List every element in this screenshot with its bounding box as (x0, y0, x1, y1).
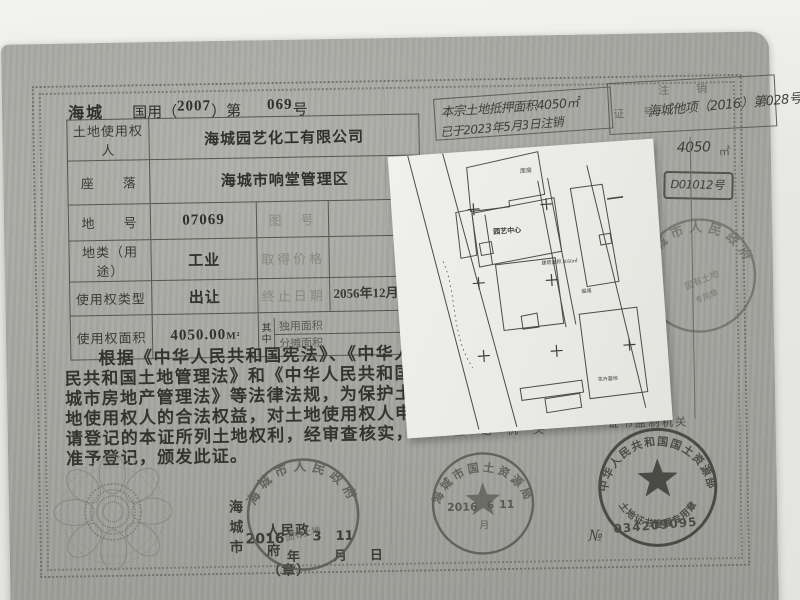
seal-center-line2: 专用章 (693, 287, 719, 306)
mortgage-area-unit: ㎡ (719, 143, 730, 159)
right-type-label: 使用权类型 (70, 281, 153, 316)
area-number: 4050.00 (170, 327, 226, 344)
serial-no-symbol: № (588, 526, 603, 544)
day-char: 日 (370, 544, 383, 563)
serial-number: 069 (267, 97, 293, 114)
seal-arc-text: 海城市人民政府 (243, 458, 362, 508)
parcel-value: 07069 (150, 202, 257, 240)
table-row: 土地使用权人 海城园艺化工有限公司 (67, 114, 420, 161)
owner-value: 海城园艺化工有限公司 (149, 114, 420, 160)
guilloche-rosette (47, 449, 179, 581)
cancellation-box: 注 销 证 号 海城他项（2016）第028号 (607, 74, 777, 135)
seal-center-text: 国有土地 (284, 524, 322, 543)
location-label: 座 落 (67, 160, 150, 205)
bureau-date-month: 6 (487, 500, 494, 511)
road-line (443, 149, 517, 430)
scanned-land-certificate-photo: 海城国用（2007）第069号 土地使用权人 海城园艺化工有限公司 座 落 海城… (0, 0, 800, 600)
road-line (408, 152, 479, 433)
bureau-date-day: 11 (499, 498, 515, 511)
city-government-seal: 海城市人民政府 国有土地 (237, 449, 369, 581)
map-bottom-label: 花卉基地 (598, 375, 618, 383)
location-value: 海城市响堂管理区 (149, 155, 420, 204)
bureau-date-year: 2016 (447, 500, 478, 514)
mortgage-area-value: 4050 (677, 139, 711, 156)
table-row: 座 落 海城市响堂管理区 (67, 155, 420, 205)
owner-label: 土地使用权人 (67, 119, 150, 161)
table-row: 地类（用途） 工业 取得价格 (69, 235, 422, 282)
table-row: 地 号 07069 图 号 (68, 199, 421, 241)
map-center-label: 园艺中心 (493, 225, 522, 236)
svg-text:海城市人民政府: 海城市人民政府 (243, 458, 362, 508)
class-label: 地类（用途） (69, 240, 152, 282)
star-icon (637, 458, 678, 497)
end-date-label: 终止日期 (258, 278, 331, 313)
price-label: 取得价格 (257, 237, 330, 279)
bureau-month-char: 月 (479, 519, 489, 531)
map-wall-label: 围墙 (581, 287, 591, 295)
cadastral-plan-drawing: 库房 园艺中心 建筑面积 4050㎡ 围墙 花卉基地 (388, 139, 673, 439)
land-bureau-seal: 海城市国土资源局 2016 11 6 月 (422, 443, 544, 565)
class-value: 工业 (151, 238, 258, 281)
serial-year: 2007 (177, 98, 211, 116)
sole-area-label: 独用面积 (279, 317, 323, 334)
ministry-seal: 中华人民共和国国土资源部 土地证书管理专用章 (590, 421, 726, 557)
land-fields-table: 土地使用权人 海城园艺化工有限公司 座 落 海城市响堂管理区 地 号 07069… (66, 113, 423, 360)
right-type-value: 出让 (152, 279, 259, 315)
mapno-label: 图 号 (256, 201, 329, 238)
area-unit: M² (226, 331, 241, 342)
code-stamp-text: D01012号 (670, 176, 724, 193)
code-stamp-box: D01012号 (663, 171, 733, 200)
certificate-sheet: 海城国用（2007）第069号 土地使用权人 海城园艺化工有限公司 座 落 海城… (1, 31, 779, 600)
cadastral-map-inset: 库房 园艺中心 建筑面积 4050㎡ 围墙 花卉基地 (388, 139, 673, 439)
parcel-label: 地 号 (68, 204, 151, 241)
map-top-label: 库房 (520, 166, 533, 175)
